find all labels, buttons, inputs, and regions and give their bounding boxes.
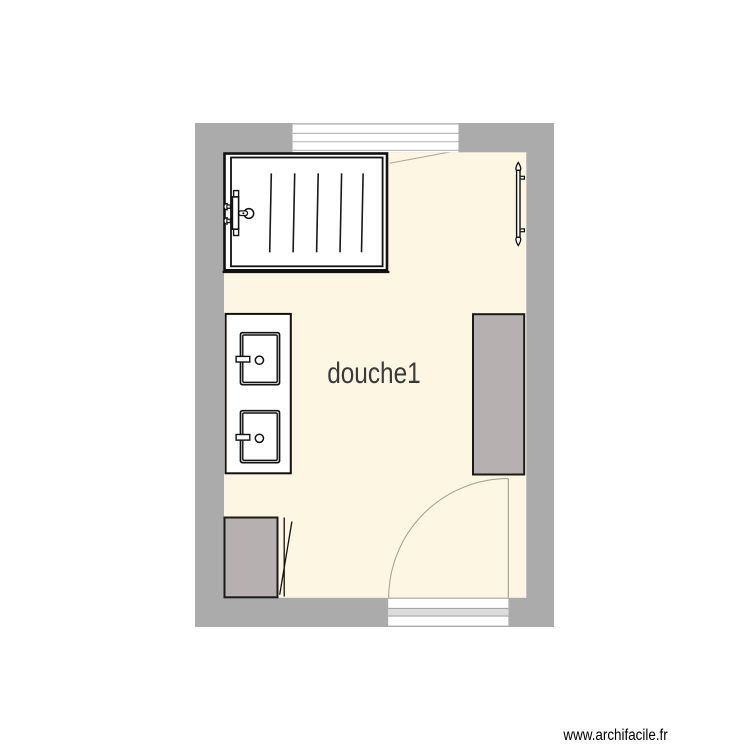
svg-text:douche1: douche1 <box>327 357 421 390</box>
svg-text:www.archifacile.fr: www.archifacile.fr <box>563 727 668 744</box>
